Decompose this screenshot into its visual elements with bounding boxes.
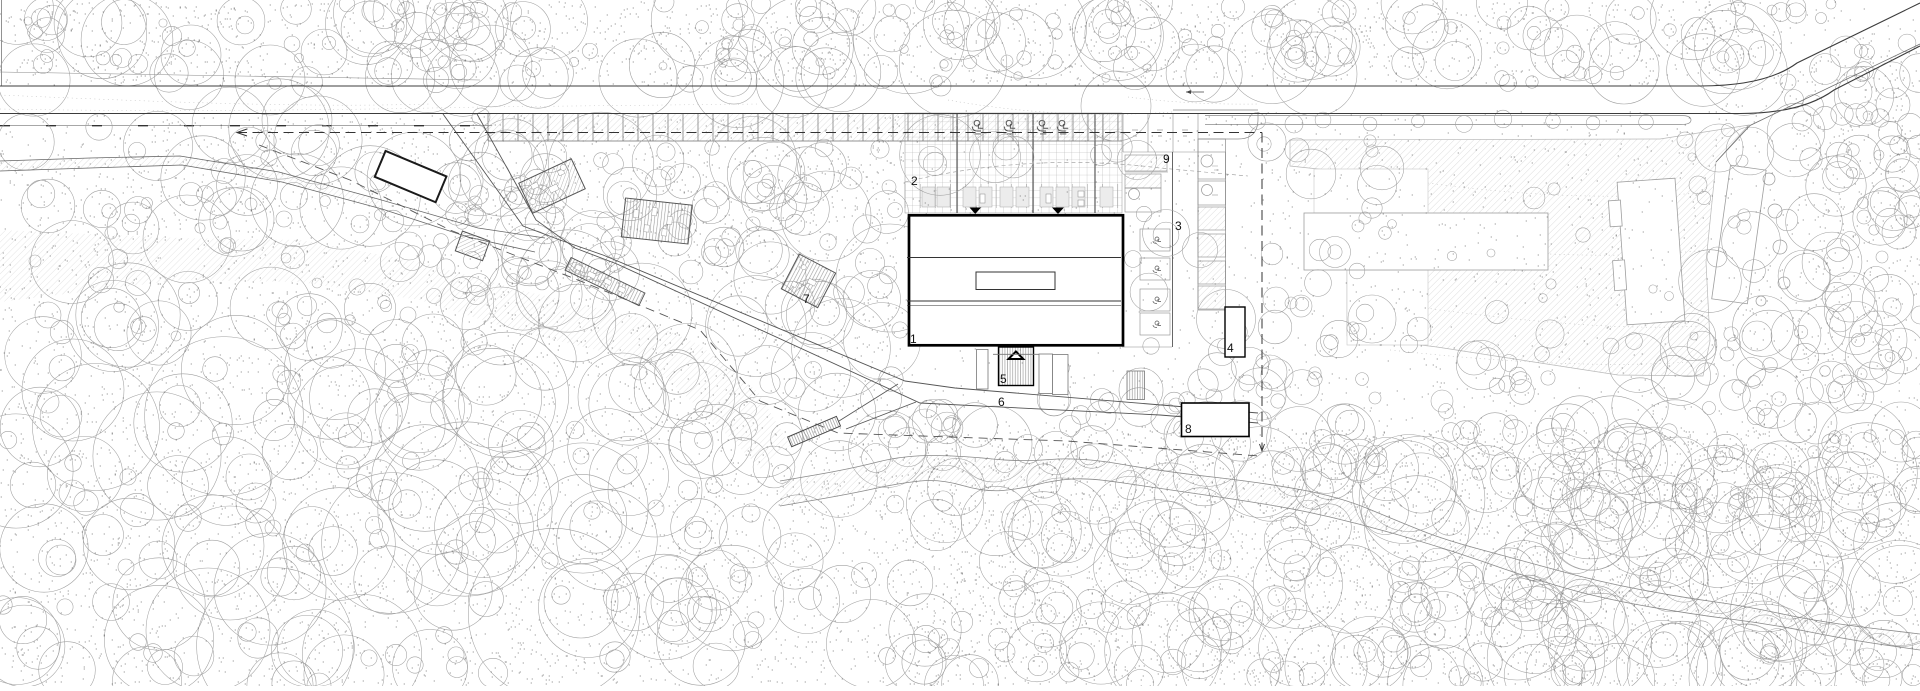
svg-text:3: 3 <box>1175 219 1182 233</box>
svg-text:8: 8 <box>1185 422 1192 436</box>
svg-text:1: 1 <box>910 332 917 346</box>
svg-text:9: 9 <box>1163 152 1170 166</box>
svg-text:6: 6 <box>998 395 1005 409</box>
svg-text:5: 5 <box>1000 372 1007 386</box>
svg-text:2: 2 <box>911 174 918 188</box>
svg-text:4: 4 <box>1227 341 1234 355</box>
svg-text:7: 7 <box>803 292 810 306</box>
